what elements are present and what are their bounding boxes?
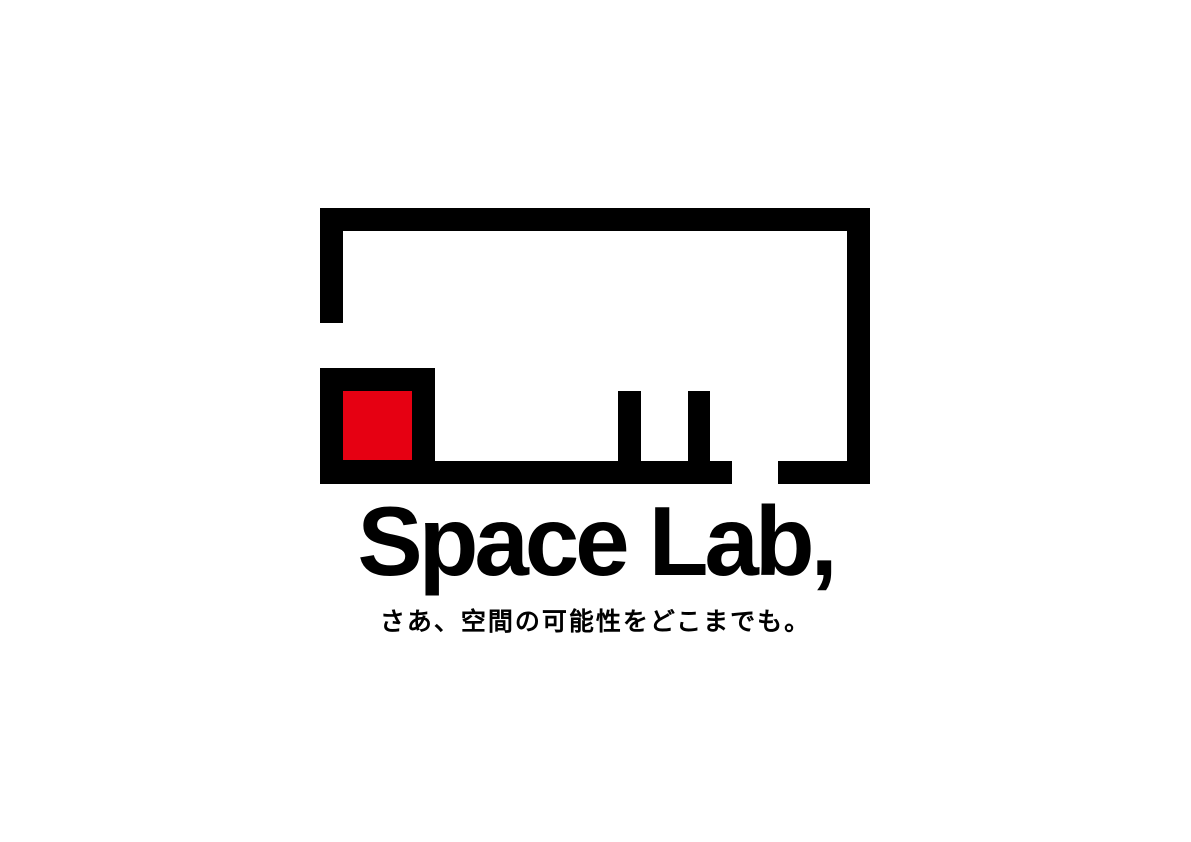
mark-red-square	[343, 391, 412, 460]
room-outline-with-red-square-and-table-legs-icon	[320, 208, 870, 484]
mark-left-wall-upper	[320, 208, 343, 323]
mark-table-leg-1	[618, 391, 641, 461]
mark-right-wall	[847, 208, 870, 484]
mark-bottom-wall-left	[320, 461, 732, 484]
mark-bottom-wall-right	[778, 461, 870, 484]
brand-wordmark: Space Lab,	[0, 492, 1191, 590]
mark-table-leg-2	[688, 391, 710, 461]
mark-top-wall	[320, 208, 870, 231]
logo-canvas: Space Lab, さあ、空間の可能性をどこまでも。	[0, 0, 1191, 842]
brand-tagline: さあ、空間の可能性をどこまでも。	[0, 603, 1191, 641]
